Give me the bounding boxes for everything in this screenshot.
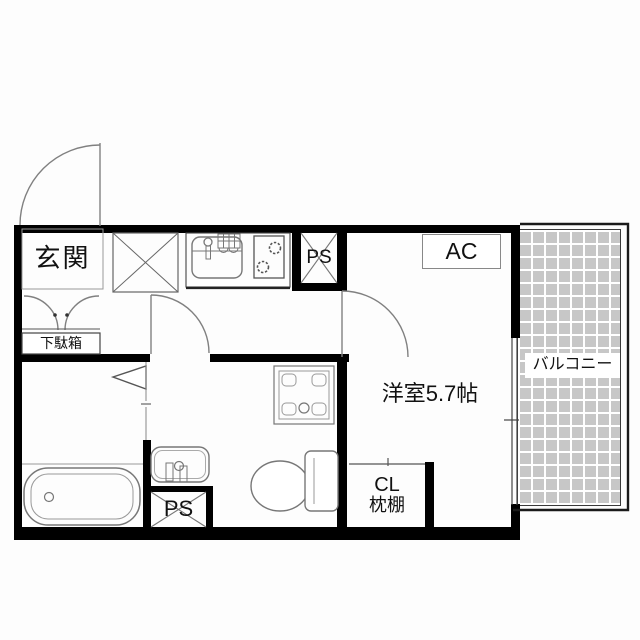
pipe-space-upper-label: PS xyxy=(301,233,337,283)
floorplan-drawing xyxy=(0,0,640,640)
bathtub xyxy=(24,468,140,525)
toilet-tank xyxy=(305,451,338,511)
wall-bath-partition xyxy=(143,440,151,527)
wall-ps-upper-left xyxy=(292,225,301,291)
kitchen-faucet-stem xyxy=(206,246,211,259)
wash-basin xyxy=(151,447,209,482)
floor-plan: 玄関 下駄箱 PS AC 洋室5.7帖 バルコニー CL 枕棚 PS xyxy=(0,0,640,640)
closet-label-line2: 枕棚 xyxy=(369,496,405,515)
stove-unit xyxy=(254,236,284,278)
stove-burner-bottom xyxy=(258,262,269,273)
bathtub-inner xyxy=(31,474,133,519)
main-room-label: 洋室5.7帖 xyxy=(349,381,511,407)
pan-inner xyxy=(279,371,329,419)
stove-burner-top xyxy=(270,243,281,254)
wall-ps-lower-right xyxy=(206,486,213,527)
room-door-arc xyxy=(342,291,408,357)
wall-right-upper xyxy=(511,225,520,338)
wall-washroom-top-right xyxy=(210,354,349,362)
washing-machine-pan xyxy=(274,366,334,424)
toilet xyxy=(251,451,338,511)
wall-left xyxy=(14,225,22,540)
pan-pad-bl xyxy=(282,403,296,415)
shoe-cabinet-label: 下駄箱 xyxy=(22,333,100,354)
bath-fold-door-triangle xyxy=(113,366,146,389)
closet-label: CL 枕棚 xyxy=(349,469,425,521)
bathtub-drain xyxy=(45,493,54,502)
pan-pad-tl xyxy=(282,374,296,386)
entrance-door-arc xyxy=(20,145,100,225)
shoe-cabinet-door-arc-left xyxy=(24,296,58,330)
wall-ps-upper-bottom xyxy=(292,283,347,291)
pipe-space-lower-label: PS xyxy=(151,490,206,528)
bathtub-outer xyxy=(24,468,140,525)
pan-pad-br xyxy=(312,403,326,415)
balcony-label: バルコニー xyxy=(525,353,620,378)
genkan-room-label: 玄関 xyxy=(22,229,103,289)
wall-closet-right xyxy=(425,462,434,527)
pan-pad-tr xyxy=(312,374,326,386)
wall-washroom-top-left xyxy=(14,354,150,362)
closet-label-line1: CL xyxy=(374,475,400,496)
wall-ps-upper-right xyxy=(337,225,347,291)
drain-rack-scallop xyxy=(219,248,238,253)
shoe-cabinet-knob-right xyxy=(65,313,69,317)
toilet-bowl xyxy=(251,461,309,511)
air-conditioner-box: AC xyxy=(422,234,501,269)
kitchen-faucet-head xyxy=(204,238,212,246)
pan-drain xyxy=(299,403,309,413)
washroom-door-arc xyxy=(151,295,209,353)
shoe-cabinet-door-arc-right xyxy=(65,296,99,330)
shoe-cabinet-knob-left xyxy=(53,313,57,317)
wall-bottom xyxy=(14,527,517,540)
